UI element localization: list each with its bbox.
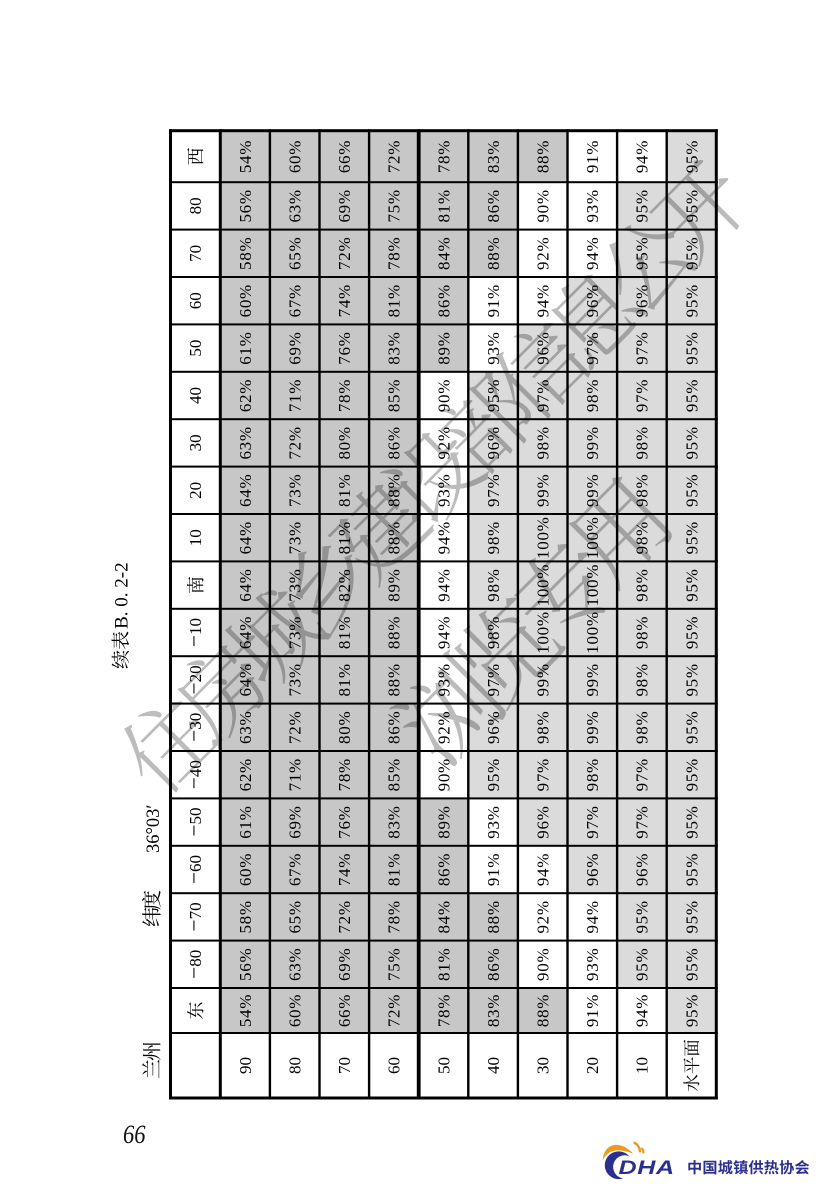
svg-text:DHA: DHA (619, 1157, 675, 1178)
